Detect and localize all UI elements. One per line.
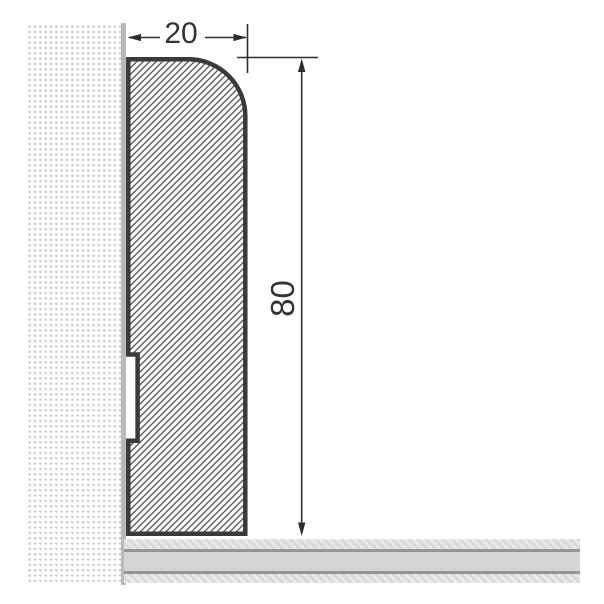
- dim-width-label: 20: [156, 16, 206, 52]
- dim-width-arrow-left-icon: [128, 34, 142, 41]
- technical-drawing-canvas: 20 80: [0, 0, 604, 604]
- dim-height-arrow-down-icon: [298, 523, 305, 537]
- profile-and-dimensions-svg: [0, 0, 604, 604]
- skirting-profile-shape: [128, 59, 245, 534]
- dim-height-arrow-up-icon: [298, 59, 305, 73]
- dim-height-label: 80: [264, 268, 301, 329]
- dim-width-arrow-right-icon: [234, 34, 248, 41]
